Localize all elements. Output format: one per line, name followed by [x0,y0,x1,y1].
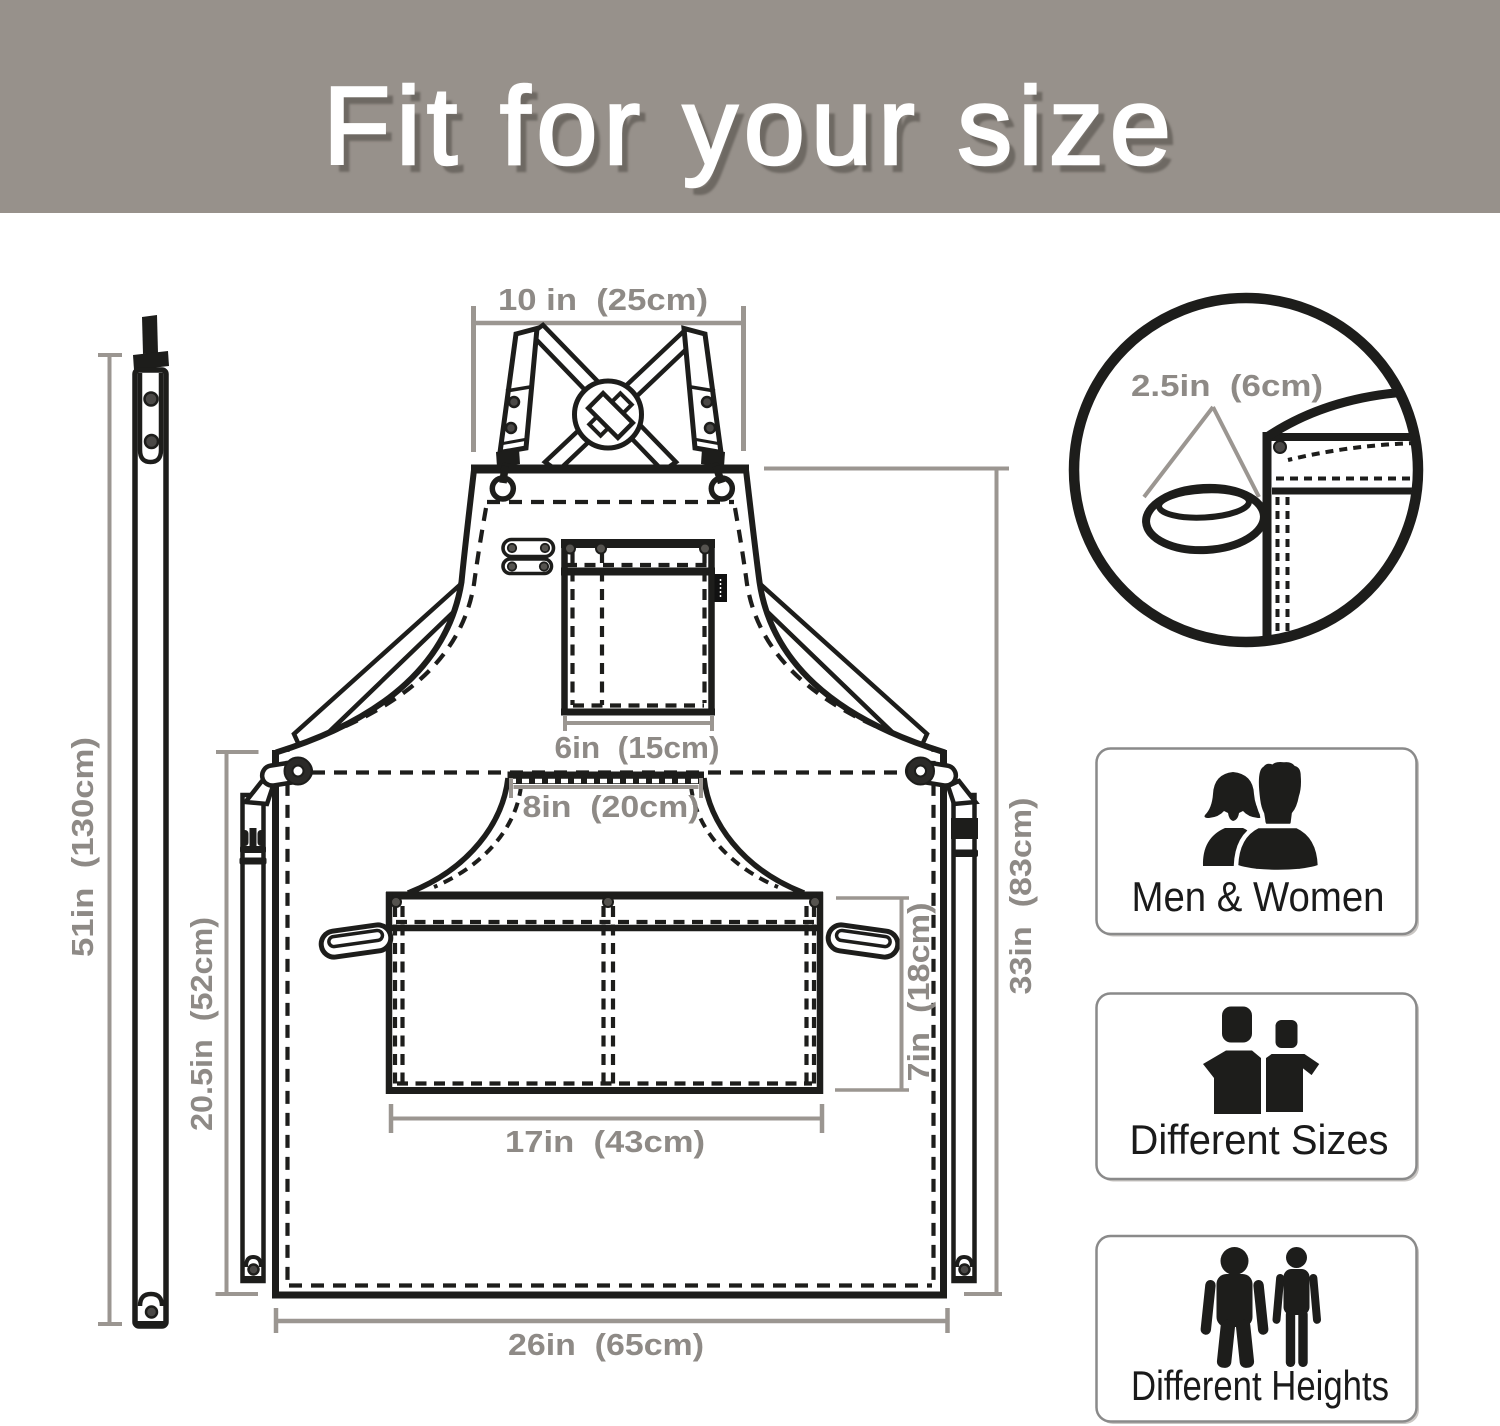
svg-text:6in (15cm): 6in (15cm) [555,730,720,765]
svg-text:51in (130cm): 51in (130cm) [65,737,100,957]
svg-text:33in (83cm): 33in (83cm) [1003,798,1038,995]
svg-text:Men & Women: Men & Women [1132,873,1385,920]
svg-text:2.5in (6cm): 2.5in (6cm) [1131,368,1323,403]
svg-text:17in (43cm): 17in (43cm) [505,1124,705,1159]
svg-text:Different Heights: Different Heights [1131,1362,1389,1409]
svg-text:8in (20cm): 8in (20cm) [523,789,700,824]
svg-text:26in (65cm): 26in (65cm) [508,1327,704,1362]
svg-text:Different Sizes: Different Sizes [1130,1116,1389,1163]
svg-text:20.5in (52cm): 20.5in (52cm) [184,917,219,1131]
svg-text:7in (18cm): 7in (18cm) [901,903,936,1082]
svg-text:10 in (25cm): 10 in (25cm) [498,282,708,317]
